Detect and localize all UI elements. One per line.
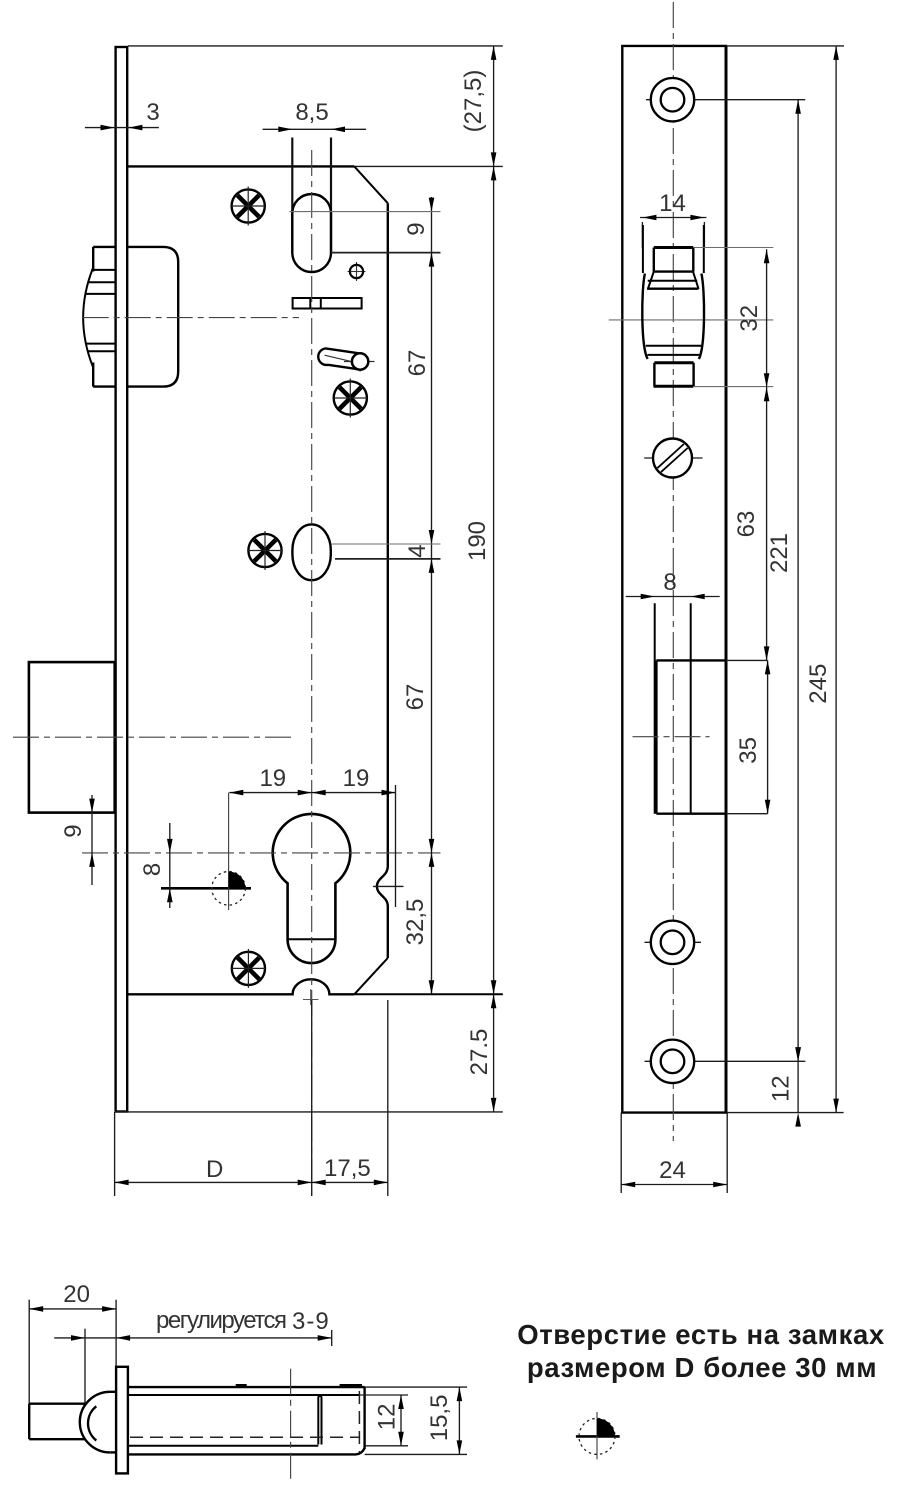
- svg-text:19: 19: [259, 765, 286, 792]
- svg-text:32: 32: [736, 305, 763, 332]
- svg-text:19: 19: [343, 765, 370, 792]
- svg-text:размером D более 30 мм: размером D более 30 мм: [527, 1352, 877, 1383]
- svg-text:67: 67: [404, 350, 431, 377]
- svg-text:D: D: [206, 1156, 223, 1183]
- svg-text:8: 8: [139, 863, 166, 876]
- svg-text:Отверстие есть на замках: Отверстие есть на замках: [517, 1319, 885, 1350]
- svg-text:27.5: 27.5: [466, 1029, 493, 1076]
- svg-text:12: 12: [768, 1075, 795, 1102]
- svg-text:регулируется: регулируется: [156, 1307, 287, 1334]
- svg-text:9: 9: [60, 824, 87, 837]
- svg-text:67: 67: [402, 684, 429, 711]
- svg-text:221: 221: [766, 533, 793, 573]
- svg-text:190: 190: [464, 521, 491, 561]
- svg-text:(27,5): (27,5): [460, 70, 487, 133]
- svg-text:17,5: 17,5: [324, 1155, 371, 1182]
- svg-text:20: 20: [63, 1281, 90, 1308]
- svg-text:63: 63: [733, 511, 760, 538]
- svg-text:9: 9: [403, 222, 430, 235]
- svg-text:32,5: 32,5: [402, 899, 429, 946]
- svg-text:4: 4: [404, 544, 431, 557]
- svg-text:14: 14: [659, 190, 686, 217]
- svg-text:8: 8: [663, 569, 676, 596]
- svg-text:3-9: 3-9: [292, 1308, 330, 1335]
- svg-text:8,5: 8,5: [295, 99, 328, 126]
- svg-text:24: 24: [659, 1157, 686, 1184]
- svg-text:35: 35: [735, 737, 762, 764]
- svg-text:15,5: 15,5: [426, 1395, 453, 1442]
- svg-text:245: 245: [805, 664, 832, 704]
- svg-text:12: 12: [374, 1404, 401, 1431]
- svg-text:3: 3: [146, 99, 159, 126]
